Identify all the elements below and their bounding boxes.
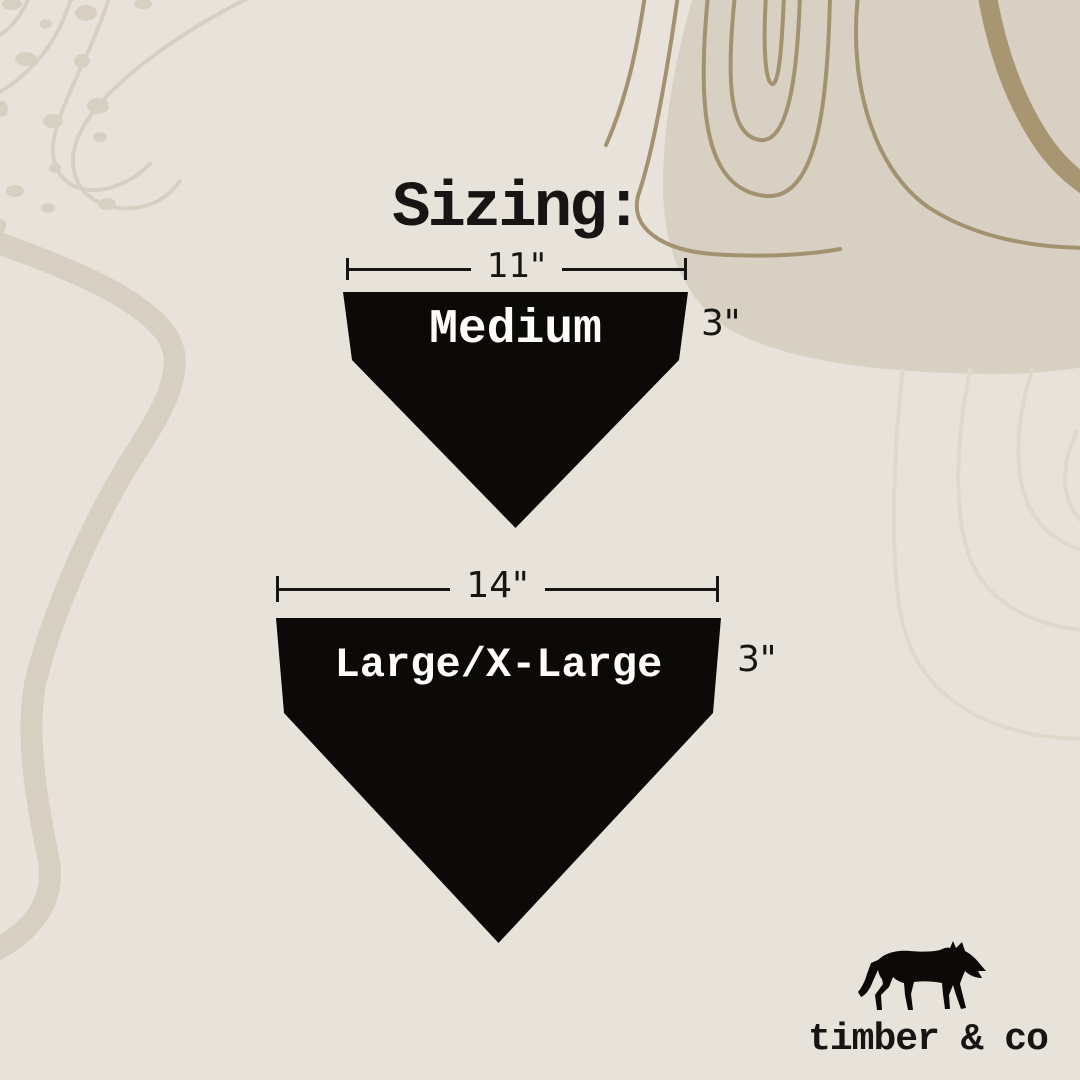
height-value-medium: 3" (701, 306, 740, 342)
width-value-medium: 11" (471, 249, 562, 283)
width-value-large: 14" (450, 568, 544, 604)
brand-name: timber & co (800, 1018, 1056, 1061)
dimension-line (279, 588, 450, 591)
wolf-icon (856, 940, 988, 1018)
dimension-tick-right (684, 258, 687, 280)
topo-contour-right-icon (894, 370, 1080, 739)
dimension-tick-right (716, 576, 719, 602)
dimension-line (349, 268, 471, 271)
size-name-large: Large/X-Large (276, 641, 721, 689)
width-dimension-medium: 11" (346, 258, 687, 280)
dimension-line (562, 268, 684, 271)
curve-band-left-icon (0, 238, 175, 954)
dimension-line (545, 588, 716, 591)
topo-contour-top-left-icon (0, 0, 255, 208)
height-value-large: 3" (737, 642, 776, 678)
deco-dots-icon (0, 0, 152, 233)
page-title: Sizing: (392, 173, 640, 245)
width-dimension-large: 14" (276, 576, 719, 602)
size-name-medium: Medium (343, 303, 688, 357)
sizing-infographic: Sizing: 11" Medium 3" 14" Large/X-Large … (0, 0, 1080, 1080)
